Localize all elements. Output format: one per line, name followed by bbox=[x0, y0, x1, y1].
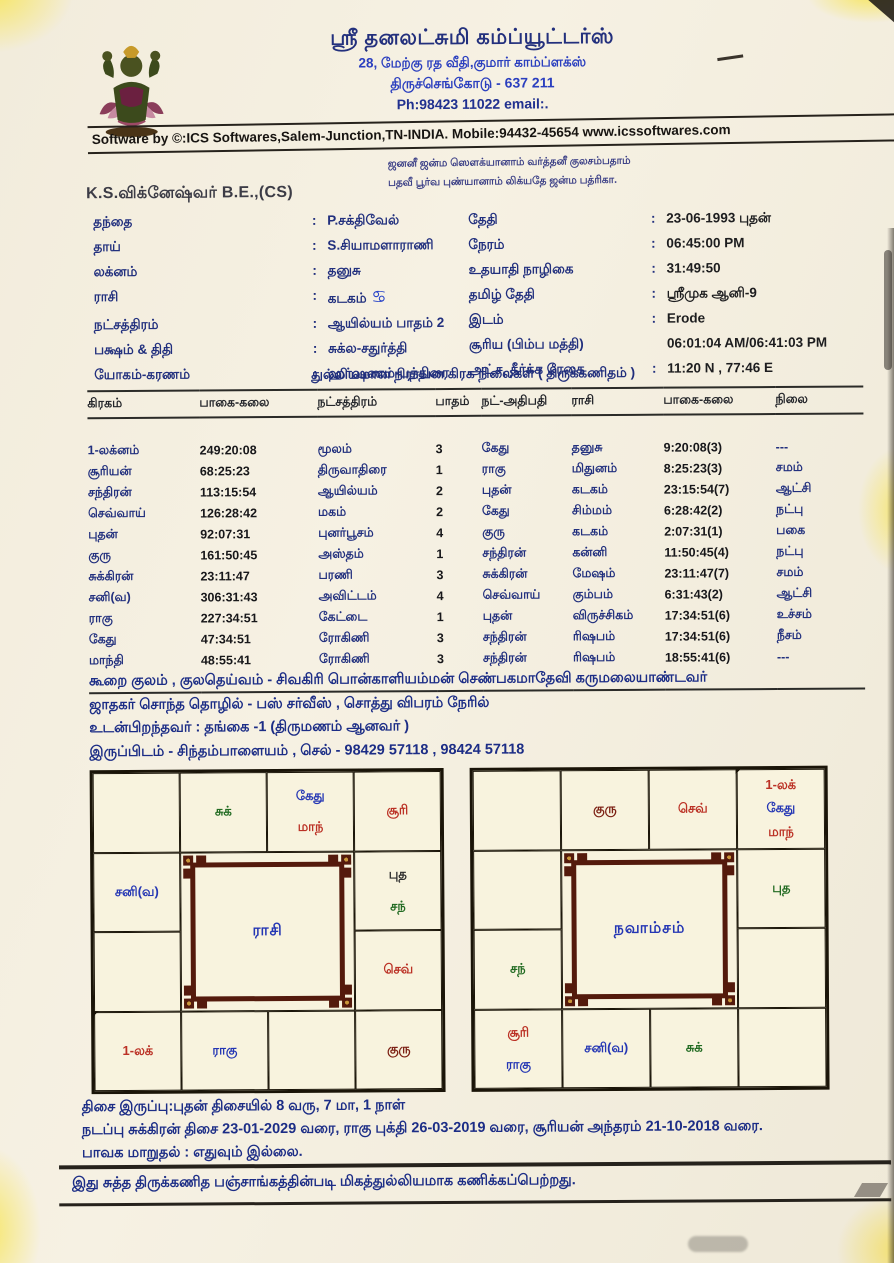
table-cell: 17:34:51(6) bbox=[665, 604, 777, 626]
detail-label: உதயாதி நாழிகை bbox=[469, 261, 641, 280]
chart-title: நவாம்சம் bbox=[614, 919, 686, 938]
table-cell: நட்பு bbox=[776, 540, 864, 562]
table-cell: 126:28:42 bbox=[200, 502, 318, 524]
table-cell: 4 bbox=[436, 522, 482, 543]
table-cell: செவ்வாய் bbox=[482, 584, 572, 606]
planet-table-header-cell: பாதம் bbox=[435, 389, 481, 416]
detail-value: ஆயில்யம் பாதம் 2 bbox=[328, 315, 444, 334]
table-cell: பகை bbox=[776, 519, 864, 541]
table-cell: சந்திரன் bbox=[482, 542, 572, 564]
planet-label: குரு bbox=[387, 1041, 411, 1058]
detail-value: S.சியாமளாராணி bbox=[327, 237, 433, 256]
table-cell: 9:20:08(3) bbox=[664, 436, 776, 458]
table-cell: 3 bbox=[437, 627, 483, 648]
table-cell: சனி(வ) bbox=[88, 587, 200, 609]
table-cell: கன்னி bbox=[572, 542, 664, 564]
planet-label: குரு bbox=[593, 801, 617, 818]
chart-cell: சுக் bbox=[650, 1008, 738, 1088]
note-line: இருப்பிடம் - சிந்தம்பாளையம் , செல் - 984… bbox=[89, 736, 879, 764]
planet-label: ராகு bbox=[212, 1042, 237, 1059]
table-cell: புனர்பூசம் bbox=[318, 522, 436, 544]
table-cell: ரோகிணி bbox=[319, 627, 437, 649]
planet-table-header-cell: பாகை-கலை bbox=[199, 390, 317, 418]
planet-label: கேது bbox=[766, 800, 795, 817]
table-cell: சுக்கிரன் bbox=[482, 563, 572, 585]
chart-cell bbox=[268, 1010, 355, 1090]
chart-cell: கேதுமாந் bbox=[267, 772, 354, 852]
table-cell: 2 bbox=[436, 480, 482, 501]
table-cell: 1 bbox=[436, 543, 482, 564]
detail-value: கடகம் ♋ bbox=[328, 287, 387, 308]
table-cell: 17:34:51(6) bbox=[665, 625, 777, 647]
table-cell: சூரியன் bbox=[88, 461, 200, 483]
planet-label: சூரி bbox=[386, 802, 408, 819]
table-cell: உச்சம் bbox=[777, 603, 865, 625]
accuracy-footer: இது சுத்த திருக்கணித பஞ்சாங்கத்தின்படி ம… bbox=[72, 1170, 872, 1193]
table-cell: ஆட்சி bbox=[776, 477, 864, 499]
table-cell: 306:31:43 bbox=[200, 586, 318, 608]
table-cell: 249:20:08 bbox=[200, 439, 318, 461]
scan-edge-artifact bbox=[887, 228, 894, 1263]
detail-row: சூரிய (பிம்ப மத்தி)06:01:04 AM/06:41:03 … bbox=[469, 334, 889, 355]
table-cell: 92:07:31 bbox=[200, 523, 318, 545]
divider-thin bbox=[59, 1198, 891, 1206]
table-cell: 6:28:42(2) bbox=[664, 499, 776, 521]
table-cell: அஸ்தம் bbox=[318, 543, 436, 565]
chart-cell: 1-லக்கேதுமாந் bbox=[737, 769, 825, 849]
table-cell: கேது bbox=[89, 629, 201, 651]
detail-row: பக்ஷம் & திதி:சுக்ல-சதுர்த்தி bbox=[94, 340, 464, 360]
rasi-chart: சுக்கேதுமாந்சூரிசனி(வ)ராசிபுதசந்செவ்1-லக… bbox=[90, 768, 446, 1094]
detail-value: 06:01:04 AM/06:41:03 PM bbox=[667, 335, 827, 354]
chart-cell bbox=[473, 770, 561, 850]
chart-cell: சூரி bbox=[354, 771, 441, 851]
planet-table-body: 1-லக்னம்249:20:08மூலம்3கேதுதனுசு9:20:08(… bbox=[87, 413, 865, 693]
chart-cell bbox=[94, 932, 181, 1012]
lakshmi-logo-graphic bbox=[69, 28, 200, 141]
table-cell: 8:25:23(3) bbox=[664, 457, 776, 479]
table-cell: நட்பு bbox=[776, 498, 864, 520]
planet-label: சுக் bbox=[215, 804, 232, 821]
planet-label: மாந் bbox=[768, 824, 794, 841]
detail-row: தேதி:23-06-1993 புதன் bbox=[468, 209, 888, 230]
table-cell: கடகம் bbox=[572, 479, 664, 501]
detail-label: லக்னம் bbox=[94, 263, 302, 282]
navamsam-chart: குருசெவ்1-லக்கேதுமாந்நவாம்சம்புதசந்சூரிர… bbox=[470, 766, 830, 1092]
planet-label: செவ் bbox=[383, 961, 413, 978]
table-cell: மகம் bbox=[318, 501, 436, 523]
detail-colon: : bbox=[641, 261, 667, 279]
planet-label: புத bbox=[772, 880, 790, 897]
native-name: K.S.விக்னேஷ்வர் B.E.,(CS) bbox=[86, 183, 293, 204]
planet-label: ராகு bbox=[506, 1056, 531, 1073]
birth-details-left: தந்தை:P.சக்திவேல்தாய்:S.சியாமளாராணிலக்னம… bbox=[93, 212, 464, 392]
table-cell: சந்திரன் bbox=[88, 482, 200, 504]
table-cell: கேது bbox=[482, 500, 572, 522]
table-cell: குரு bbox=[88, 545, 200, 567]
detail-row: தந்தை:P.சக்திவேல் bbox=[93, 212, 463, 232]
detail-value: சுக்ல-சதுர்த்தி bbox=[328, 340, 407, 358]
corner-ornament bbox=[342, 997, 352, 1007]
table-cell: 6:31:43(2) bbox=[664, 583, 776, 605]
detail-colon: : bbox=[640, 211, 666, 229]
planet-label: மாந் bbox=[298, 819, 324, 836]
lakshmi-deity-logo bbox=[69, 28, 200, 141]
chart-cell: சனி(வ) bbox=[562, 1008, 650, 1088]
corner-ornament bbox=[183, 855, 193, 865]
corner-ornament bbox=[184, 998, 194, 1008]
chart-cell bbox=[738, 1007, 826, 1087]
detail-value: Erode bbox=[667, 310, 705, 328]
detail-colon: : bbox=[641, 286, 667, 304]
table-cell: 11:50:45(4) bbox=[664, 541, 776, 563]
company-address-line2: திருச்செங்கோடு - 637 211 bbox=[237, 73, 707, 95]
chart-cell: புதசந் bbox=[354, 851, 441, 931]
table-cell: கேது bbox=[482, 437, 572, 459]
scan-smudge-artifact bbox=[688, 1236, 748, 1252]
planet-position-table: கிரகம்பாகை-கலைநட்சத்திரம்பாதம்நட்-அதிபதி… bbox=[87, 385, 865, 694]
planet-label: கேது bbox=[296, 787, 325, 804]
detail-row: லக்னம்:தனுசு bbox=[94, 262, 464, 282]
table-cell: ராகு bbox=[89, 608, 201, 630]
detail-label: தாய் bbox=[93, 238, 301, 257]
table-cell: ஆட்சி bbox=[776, 582, 864, 604]
chart-cell bbox=[93, 773, 180, 853]
detail-value: P.சக்திவேல் bbox=[327, 212, 399, 230]
cancer-zodiac-icon: ♋ bbox=[367, 287, 387, 306]
table-cell: 68:25:23 bbox=[200, 460, 318, 482]
detail-row: இடம்:Erode bbox=[469, 309, 889, 330]
table-cell: --- bbox=[776, 435, 864, 457]
chart-cell: புத bbox=[737, 848, 825, 928]
table-cell: 3 bbox=[437, 648, 483, 669]
table-cell: சுக்கிரன் bbox=[88, 566, 200, 588]
detail-label: தந்தை bbox=[93, 213, 301, 232]
table-cell: மாந்தி bbox=[89, 650, 201, 672]
table-cell: சந்திரன் bbox=[483, 626, 573, 648]
table-cell: ராகு bbox=[482, 458, 572, 480]
table-cell: 18:55:41(6) bbox=[665, 646, 777, 668]
planet-label: சுக் bbox=[686, 1039, 703, 1056]
corner-ornament bbox=[564, 853, 574, 863]
chart-cell: சுக் bbox=[180, 772, 267, 852]
chart-cell: குரு bbox=[355, 1010, 442, 1090]
chart-title: ராசி bbox=[252, 922, 282, 941]
scanned-horoscope-page: ஸ்ரீ தனலட்சுமி கம்ப்யூட்டர்ஸ் 28, மேற்கு… bbox=[0, 0, 894, 1263]
detail-row: நேரம்:06:45:00 PM bbox=[468, 234, 888, 255]
planet-table-header-cell: நட்-அதிபதி bbox=[481, 388, 571, 416]
chart-cell: செவ் bbox=[649, 769, 737, 849]
sanskrit-shloka: ஜனனீ ஜன்ம ஸௌக்யானாம் வர்த்தனீ குலசம்பதாம… bbox=[388, 149, 818, 193]
planet-table-header-cell: நிலை bbox=[775, 386, 863, 414]
table-cell: 2 bbox=[436, 501, 482, 522]
pen-dash-mark bbox=[717, 54, 743, 61]
chart-center: ராசி bbox=[180, 851, 355, 1011]
detail-label: பக்ஷம் & திதி bbox=[94, 341, 302, 360]
table-cell: 23:11:47 bbox=[200, 565, 318, 587]
detail-value: தனுசு bbox=[328, 263, 361, 281]
detail-colon: : bbox=[640, 236, 666, 254]
table-cell: 161:50:45 bbox=[200, 544, 318, 566]
table-cell: சமம் bbox=[776, 456, 864, 478]
detail-label: சூரிய (பிம்ப மத்தி) bbox=[469, 336, 641, 355]
planet-table-header-cell: ராசி bbox=[571, 388, 663, 416]
table-cell: 23:15:54(7) bbox=[664, 478, 776, 500]
table-cell: --- bbox=[777, 645, 865, 667]
table-cell: 113:15:54 bbox=[200, 481, 318, 503]
planet-label: புத bbox=[389, 866, 407, 883]
table-cell: குரு bbox=[482, 521, 572, 543]
letterhead: ஸ்ரீ தனலட்சுமி கம்ப்யூட்டர்ஸ் 28, மேற்கு… bbox=[237, 24, 708, 113]
corner-ornament bbox=[565, 996, 575, 1006]
planet-label: 1-லக் bbox=[765, 776, 796, 793]
table-cell: மிதுனம் bbox=[572, 458, 664, 480]
table-cell: 3 bbox=[436, 564, 482, 585]
planet-label: 1-லக் bbox=[122, 1043, 153, 1060]
chart-cell bbox=[473, 850, 561, 930]
planet-label: செவ் bbox=[678, 801, 708, 818]
chart-cell bbox=[738, 928, 826, 1008]
chart-center: நவாம்சம் bbox=[561, 849, 738, 1009]
detail-label: இடம் bbox=[469, 311, 641, 330]
table-cell: கடகம் bbox=[572, 521, 664, 543]
software-credit-line: Software by ©:ICS Softwares,Salem-Juncti… bbox=[88, 113, 894, 154]
detail-value: 06:45:00 PM bbox=[666, 235, 744, 253]
table-cell: ரோகிணி bbox=[319, 648, 437, 670]
table-cell: மேஷம் bbox=[572, 563, 664, 585]
chart-cell: சூரிராகு bbox=[474, 1009, 562, 1089]
table-cell: புதன் bbox=[88, 524, 200, 546]
birth-details-right: தேதி:23-06-1993 புதன்நேரம்:06:45:00 PMஉத… bbox=[468, 209, 889, 387]
corner-ornament bbox=[725, 995, 735, 1005]
detail-value: 23-06-1993 புதன் bbox=[666, 210, 771, 229]
detail-row: தமிழ் தேதி:ஸ்ரீமுக ஆனி-9 bbox=[469, 284, 889, 305]
table-cell: மூலம் bbox=[318, 438, 436, 460]
company-address-line1: 28, மேற்கு ரத வீதி,குமார் காம்ப்ளக்ஸ் bbox=[237, 53, 707, 74]
planet-label: சந் bbox=[510, 961, 526, 978]
table-cell: 23:11:47(7) bbox=[664, 562, 776, 584]
detail-label: ராசி bbox=[94, 288, 302, 310]
planet-table-header-cell: பாகை-கலை bbox=[663, 387, 775, 415]
table-cell: 227:34:51 bbox=[201, 607, 319, 629]
chart-center-frame: ராசி bbox=[190, 861, 345, 1001]
detail-value: ஸ்ரீமுக ஆனி-9 bbox=[667, 285, 757, 304]
table-cell: சந்திரன் bbox=[483, 647, 573, 669]
detail-row: ராசி:கடகம் ♋ bbox=[94, 287, 464, 310]
table-cell: விருச்சிகம் bbox=[573, 605, 665, 627]
detail-colon bbox=[641, 336, 667, 354]
chart-cell: 1-லக் bbox=[94, 1011, 181, 1091]
sheet: ஸ்ரீ தனலட்சுமி கம்ப்யூட்டர்ஸ் 28, மேற்கு… bbox=[0, 0, 894, 1263]
table-cell: செவ்வாய் bbox=[88, 503, 200, 525]
table-cell: ரிஷபம் bbox=[573, 626, 665, 648]
dasa-summary: திசை இருப்பு:புதன் திசையில் 8 வரு, 7 மா,… bbox=[82, 1091, 882, 1165]
planet-label: சனி(வ) bbox=[584, 1040, 628, 1057]
detail-label: தமிழ் தேதி bbox=[469, 286, 641, 305]
table-cell: 4 bbox=[436, 585, 482, 606]
table-cell: தனுசு bbox=[572, 437, 664, 459]
planet-table-header-cell: நட்சத்திரம் bbox=[317, 389, 435, 417]
table-cell: 3 bbox=[436, 438, 482, 459]
table-cell: கும்பம் bbox=[572, 584, 664, 606]
detail-value: 31:49:50 bbox=[667, 260, 721, 278]
dasa-line: நடப்பு சுக்கிரன் திசை 23-01-2029 வரை, ரா… bbox=[82, 1114, 882, 1142]
family-notes: கூறை குலம் , குலதெய்வம் - சிவகிரி பொன்கா… bbox=[89, 665, 880, 764]
table-cell: 1 bbox=[437, 606, 483, 627]
detail-colon: : bbox=[641, 311, 667, 329]
planet-table-header-cell: கிரகம் bbox=[87, 391, 199, 419]
table-cell: திருவாதிரை bbox=[318, 459, 436, 481]
detail-colon: : bbox=[302, 263, 328, 281]
table-cell: ஆயில்யம் bbox=[318, 480, 436, 502]
scan-blot-artifact bbox=[884, 250, 892, 370]
chart-cell: செவ் bbox=[355, 930, 442, 1010]
detail-colon: : bbox=[302, 316, 328, 334]
table-cell: நீசம் bbox=[777, 624, 865, 646]
detail-colon: : bbox=[302, 288, 328, 309]
chart-cell: சனி(வ) bbox=[93, 852, 180, 932]
detail-label: நேரம் bbox=[468, 236, 640, 255]
corner-ornament bbox=[341, 854, 351, 864]
planet-label: சனி(வ) bbox=[115, 884, 159, 901]
detail-label: தேதி bbox=[468, 211, 640, 230]
detail-colon: : bbox=[301, 213, 327, 231]
table-cell: 1 bbox=[436, 459, 482, 480]
table-cell: 47:34:51 bbox=[201, 628, 319, 650]
table-cell: சிம்மம் bbox=[572, 500, 664, 522]
chart-cell: குரு bbox=[561, 770, 649, 850]
planet-label: சந் bbox=[390, 898, 406, 915]
scan-corner-artifact bbox=[866, 0, 894, 24]
chart-cell: சந் bbox=[474, 929, 562, 1009]
detail-row: உதயாதி நாழிகை:31:49:50 bbox=[469, 259, 889, 280]
detail-colon: : bbox=[302, 341, 328, 359]
table-cell: புதன் bbox=[482, 479, 572, 501]
detail-row: நட்சத்திரம்:ஆயில்யம் பாதம் 2 bbox=[94, 315, 464, 335]
chart-center-frame: நவாம்சம் bbox=[571, 859, 728, 999]
table-cell: புதன் bbox=[483, 605, 573, 627]
table-cell: கேட்டை bbox=[319, 606, 437, 628]
detail-colon: : bbox=[301, 238, 327, 256]
detail-row: தாய்:S.சியாமளாராணி bbox=[93, 237, 463, 257]
company-name: ஸ்ரீ தனலட்சுமி கம்ப்யூட்டர்ஸ் bbox=[237, 24, 707, 53]
table-cell: பரணி bbox=[318, 564, 436, 586]
table-cell: 48:55:41 bbox=[201, 649, 319, 671]
planet-label: சூரி bbox=[507, 1025, 529, 1042]
company-phone: Ph:98423 11022 email:. bbox=[238, 94, 708, 113]
table-cell: 1-லக்னம் bbox=[88, 440, 200, 462]
detail-label: நட்சத்திரம் bbox=[94, 316, 302, 335]
table-cell: சமம் bbox=[776, 561, 864, 583]
chart-cell: ராகு bbox=[181, 1011, 268, 1091]
corner-ornament bbox=[724, 852, 734, 862]
table-cell: ரிஷபம் bbox=[573, 647, 665, 669]
table-cell: 2:07:31(1) bbox=[664, 520, 776, 542]
table-cell: அவிட்டம் bbox=[318, 585, 436, 607]
